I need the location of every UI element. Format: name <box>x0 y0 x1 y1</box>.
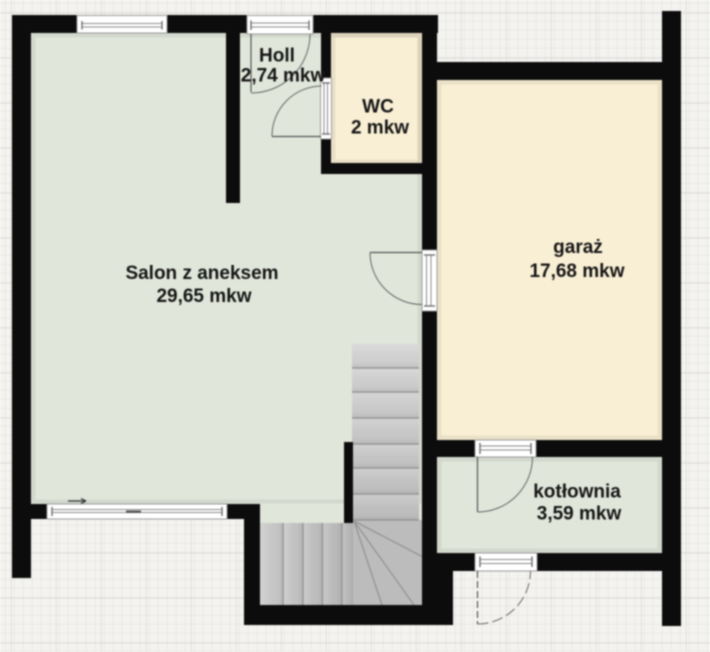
svg-text:2,74 mkw: 2,74 mkw <box>241 66 326 87</box>
svg-text:29,65 mkw: 29,65 mkw <box>156 286 251 307</box>
svg-text:kotłownia: kotłownia <box>533 482 621 503</box>
svg-text:3,59 mkw: 3,59 mkw <box>537 504 622 525</box>
svg-text:Holl: Holl <box>259 46 295 67</box>
svg-text:2 mkw: 2 mkw <box>351 118 409 139</box>
svg-text:17,68 mkw: 17,68 mkw <box>529 261 624 282</box>
svg-text:WC: WC <box>362 97 394 118</box>
svg-text:Salon z aneksem: Salon z aneksem <box>125 263 278 284</box>
svg-text:garaż: garaż <box>553 237 603 258</box>
